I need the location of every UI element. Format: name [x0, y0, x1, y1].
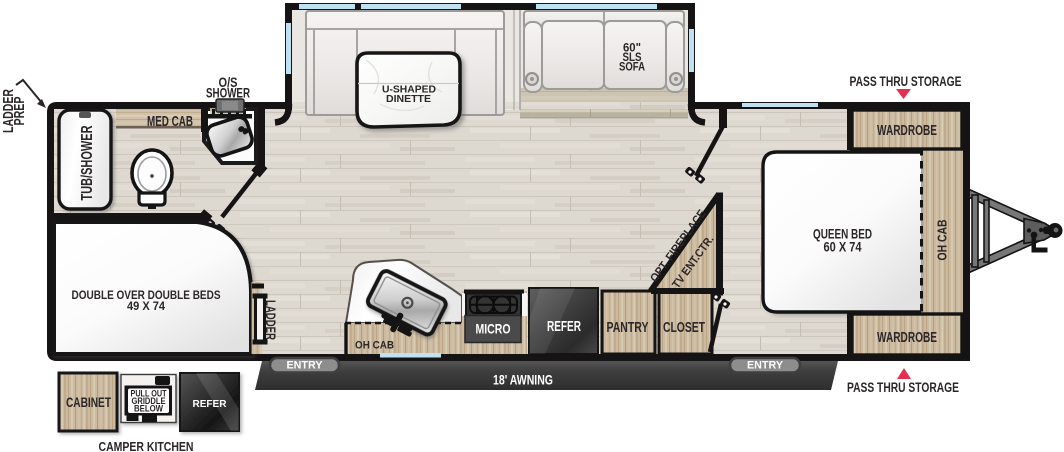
svg-text:PANTRY: PANTRY [607, 320, 649, 336]
svg-text:MICRO: MICRO [476, 321, 511, 337]
svg-text:MED CAB: MED CAB [147, 113, 193, 130]
svg-text:49 X 74: 49 X 74 [127, 301, 166, 313]
svg-text:DINETTE: DINETTE [386, 94, 431, 105]
svg-text:CABINET: CABINET [66, 395, 112, 410]
svg-text:SOFA: SOFA [619, 60, 645, 74]
svg-text:PASS THRU STORAGE: PASS THRU STORAGE [847, 380, 959, 395]
svg-text:WARDROBE: WARDROBE [877, 123, 937, 139]
svg-text:CAMPER KITCHEN: CAMPER KITCHEN [99, 440, 194, 452]
svg-text:PASS THRU STORAGE: PASS THRU STORAGE [850, 74, 962, 89]
svg-text:SHOWER: SHOWER [206, 86, 250, 101]
svg-text:CLOSET: CLOSET [663, 320, 705, 336]
svg-text:REFER: REFER [547, 319, 581, 335]
svg-text:18' AWNING: 18' AWNING [493, 372, 553, 388]
svg-text:BELOW: BELOW [134, 404, 163, 414]
svg-text:60 X 74: 60 X 74 [824, 239, 862, 255]
svg-text:ENTRY: ENTRY [287, 360, 324, 372]
svg-text:LADDER: LADDER [263, 300, 278, 340]
svg-text:REFER: REFER [193, 398, 227, 410]
svg-text:ENTRY: ENTRY [747, 360, 784, 372]
svg-text:OH CAB: OH CAB [355, 340, 394, 352]
svg-text:WARDROBE: WARDROBE [877, 330, 937, 346]
svg-text:TUB/SHOWER: TUB/SHOWER [79, 125, 96, 200]
svg-text:PREP: PREP [12, 96, 28, 125]
svg-text:OH CAB: OH CAB [935, 220, 950, 261]
